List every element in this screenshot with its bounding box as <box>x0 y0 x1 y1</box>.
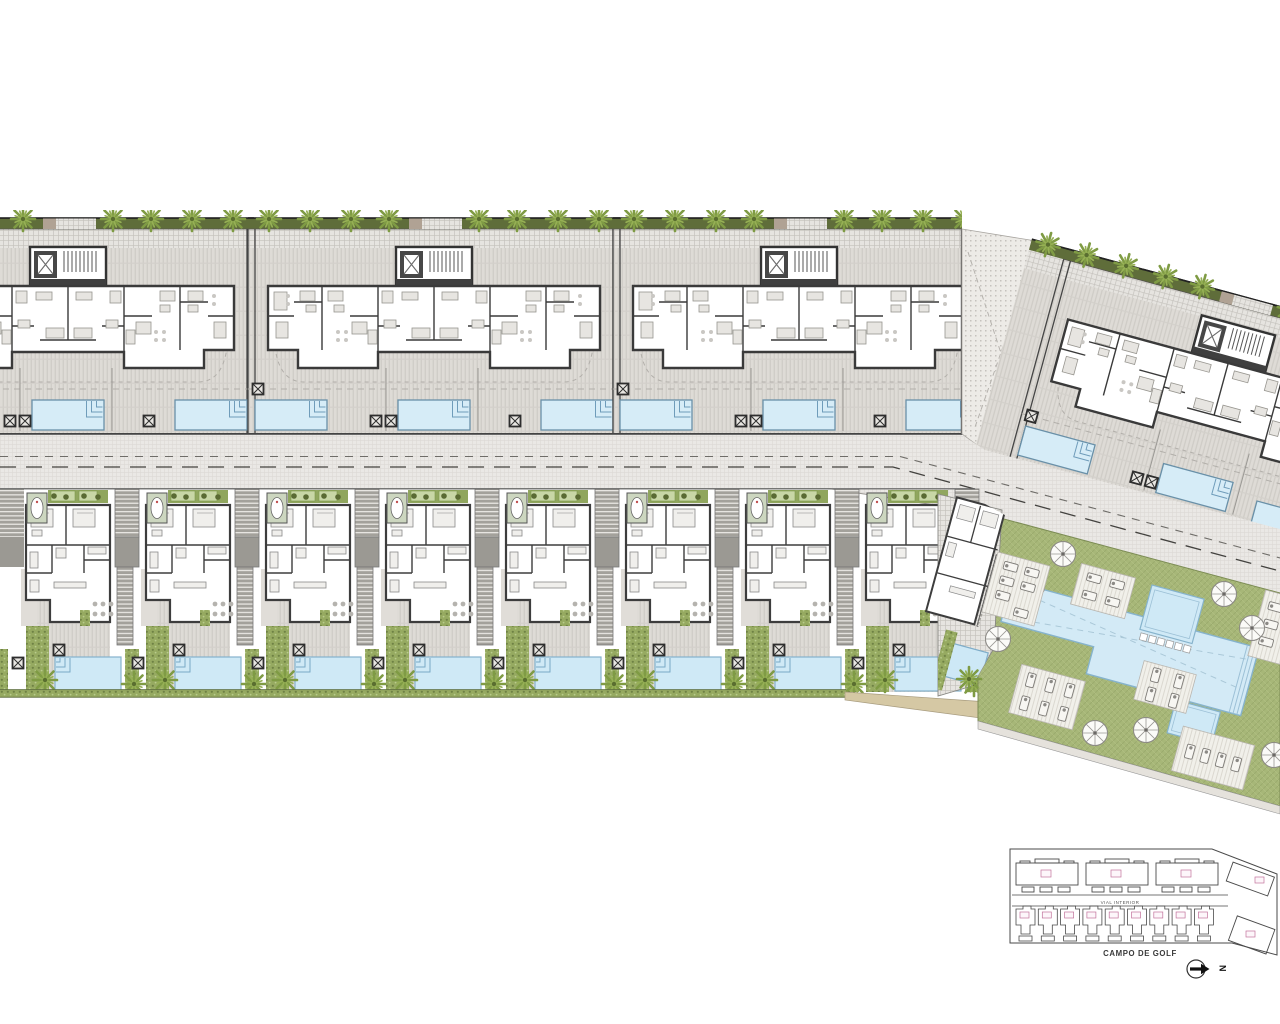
svg-text:CAMPO DE GOLF: CAMPO DE GOLF <box>1103 949 1177 958</box>
svg-text:VIAL INTERIOR: VIAL INTERIOR <box>1101 900 1140 905</box>
svg-text:N: N <box>1218 965 1228 972</box>
